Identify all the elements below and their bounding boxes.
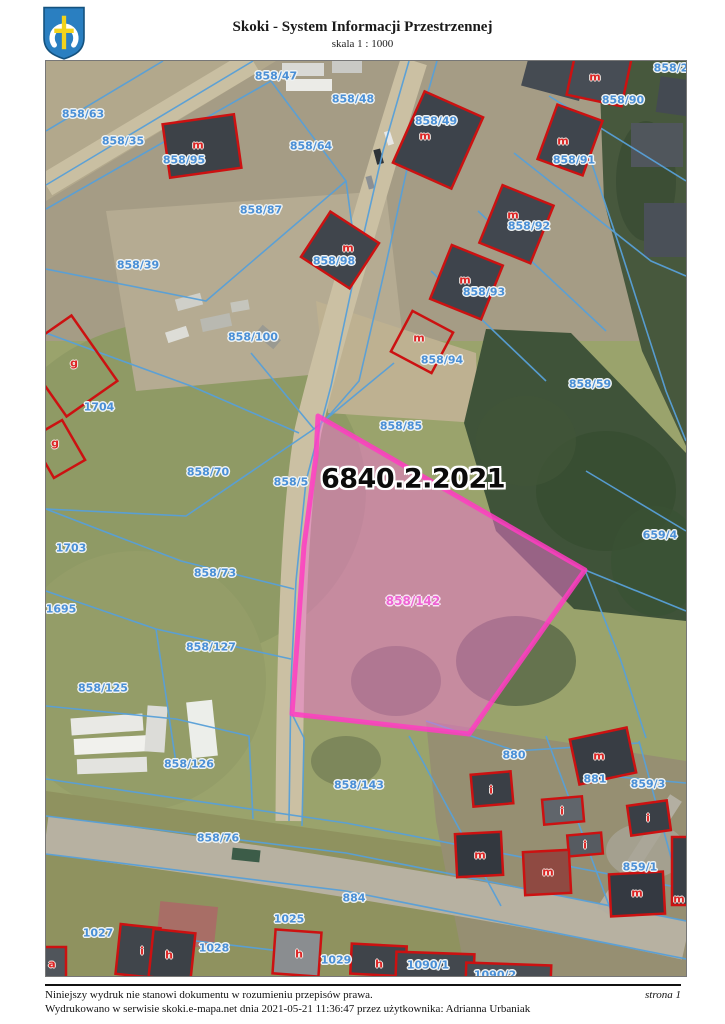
disclaimer-text: Niniejszy wydruk nie stanowi dokumentu w… [45, 989, 373, 1001]
parcel-number-label: 858/64 [290, 140, 332, 153]
building-letter-label: i [560, 805, 564, 818]
parcel-number-label: 858/47 [255, 70, 297, 83]
parcel-number-label: 1027 [83, 927, 114, 940]
building-letter-label: m [631, 887, 642, 900]
building-letter-label: g [51, 437, 59, 450]
building-letter-label: h [375, 958, 383, 971]
parcel-number-label: 858/127 [186, 641, 236, 654]
parcel-number-label: 884 [343, 892, 366, 905]
building-letter-label: m [413, 332, 424, 345]
parcel-number-label: 858/91 [553, 154, 595, 167]
page-header: Skoki - System Informacji Przestrzennej … [0, 0, 725, 60]
building-letter-label: m [589, 71, 600, 84]
parcel-number-label: 858/48 [332, 93, 374, 106]
parcel-number-label: 858/49 [415, 115, 457, 128]
parcel-number-label: 858/63 [62, 108, 104, 121]
parcel-number-label: 881 [584, 773, 607, 786]
footer-divider [45, 984, 681, 986]
parcel-number-label: 858/85 [380, 420, 422, 433]
parcel-number-label: 858/2 [654, 62, 687, 75]
parcel-number-label: 858/98 [313, 255, 355, 268]
parcel-number-label: 858/100 [228, 331, 278, 344]
building-letter-label: i [489, 784, 493, 797]
parcel-number-label: 1695 [46, 603, 77, 616]
parcel-number-label: 1704 [84, 401, 115, 414]
printed-info-text: Wydrukowano w serwisie skoki.e-mapa.net … [45, 1003, 530, 1015]
parcel-number-label: 1025 [274, 913, 305, 926]
building-letter-label: i [140, 945, 144, 958]
map-labels-layer: 858/47858/48858/2858/63858/35858/64858/9… [46, 61, 686, 976]
parcel-number-label: 858/93 [463, 286, 505, 299]
map-frame: 858/47858/48858/2858/63858/35858/64858/9… [45, 60, 687, 977]
parcel-number-label: 858/39 [117, 259, 159, 272]
page-number: strona 1 [645, 989, 681, 1001]
parcel-number-label: 880 [503, 749, 526, 762]
building-letter-label: m [192, 139, 203, 152]
parcel-number-label: 858/70 [187, 466, 229, 479]
building-letter-label: i [583, 839, 587, 852]
parcel-number-label: 858/90 [602, 94, 644, 107]
building-letter-label: i [646, 812, 650, 825]
parcel-number-label: 858/5 [274, 476, 309, 489]
parcel-number-label: 858/76 [197, 832, 239, 845]
parcel-number-label: 859/3 [631, 778, 666, 791]
parcel-number-label: 858/59 [569, 378, 611, 391]
parcel-number-label: 858/94 [421, 354, 463, 367]
highlight-title-label: 6840.2.2021 [321, 464, 505, 495]
building-letter-label: m [459, 274, 470, 287]
building-letter-label: h [165, 949, 173, 962]
parcel-number-label: 1029 [321, 954, 352, 967]
building-letter-label: m [342, 242, 353, 255]
parcel-number-label: 858/126 [164, 758, 214, 771]
print-page: Skoki - System Informacji Przestrzennej … [0, 0, 725, 1024]
parcel-number-label: 1090/1 [407, 959, 449, 972]
building-letter-label: h [295, 948, 303, 961]
building-letter-label: a [48, 958, 55, 971]
parcel-number-label: 1703 [56, 542, 87, 555]
parcel-number-label: 858/142 [386, 594, 440, 608]
parcel-number-label: 858/143 [334, 779, 384, 792]
parcel-number-label: 858/95 [163, 154, 205, 167]
parcel-number-label: 858/92 [508, 220, 550, 233]
parcel-number-label: 859/1 [623, 861, 658, 874]
parcel-number-label: 858/73 [194, 567, 236, 580]
building-letter-label: m [673, 893, 684, 906]
building-letter-label: m [474, 849, 485, 862]
parcel-number-label: 659/4 [643, 529, 678, 542]
building-letter-label: g [70, 357, 78, 370]
building-letter-label: m [507, 209, 518, 222]
parcel-number-label: 858/125 [78, 682, 128, 695]
building-letter-label: m [419, 130, 430, 143]
building-letter-label: m [557, 135, 568, 148]
building-letter-label: m [542, 866, 553, 879]
scale-label: skala 1 : 1000 [0, 38, 725, 50]
parcel-number-label: 1090/2 [474, 969, 516, 978]
page-title: Skoki - System Informacji Przestrzennej [0, 19, 725, 36]
parcel-number-label: 858/87 [240, 204, 282, 217]
parcel-number-label: 1028 [199, 942, 230, 955]
parcel-number-label: 858/35 [102, 135, 144, 148]
building-letter-label: m [593, 750, 604, 763]
